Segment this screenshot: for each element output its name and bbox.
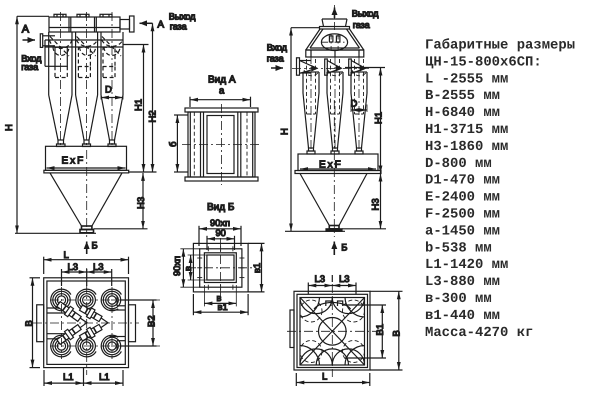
svg-text:L3: L3 bbox=[68, 262, 79, 273]
svg-text:газа: газа bbox=[21, 62, 39, 72]
svg-text:H3: H3 bbox=[136, 197, 147, 209]
svg-text:а: а bbox=[219, 86, 225, 97]
svg-text:H2: H2 bbox=[148, 110, 159, 122]
svg-text:Вход: Вход bbox=[267, 43, 288, 53]
svg-text:В: В bbox=[24, 320, 35, 326]
svg-text:в1: в1 bbox=[218, 302, 228, 312]
svg-text:газа: газа bbox=[353, 20, 371, 30]
svg-text:E x F: E x F bbox=[62, 155, 84, 166]
svg-text:в-300 мм: в-300 мм bbox=[425, 291, 492, 307]
svg-text:Вид Б: Вид Б bbox=[207, 202, 235, 213]
svg-text:L1-1420 мм: L1-1420 мм bbox=[425, 257, 508, 273]
svg-text:D: D bbox=[351, 99, 358, 110]
svg-text:Масса-4270 кг: Масса-4270 кг bbox=[425, 325, 533, 341]
svg-text:b-538 мм: b-538 мм bbox=[425, 240, 492, 256]
svg-text:А: А bbox=[22, 24, 30, 36]
svg-text:L -2555 мм: L -2555 мм bbox=[425, 71, 508, 87]
svg-text:В2: В2 bbox=[147, 315, 158, 327]
svg-text:L1: L1 bbox=[99, 372, 110, 383]
svg-text:Выход: Выход bbox=[169, 11, 196, 21]
svg-text:L3: L3 bbox=[339, 274, 350, 285]
svg-text:Е-2400 мм: Е-2400 мм bbox=[425, 190, 500, 206]
svg-text:D: D bbox=[105, 85, 112, 96]
svg-text:L: L bbox=[322, 372, 327, 383]
svg-text:Б: Б bbox=[92, 241, 98, 252]
svg-text:в: в bbox=[183, 266, 193, 271]
svg-text:а-1450 мм: а-1450 мм bbox=[425, 223, 500, 239]
svg-text:D1-470 мм: D1-470 мм bbox=[425, 173, 500, 189]
svg-text:Н-6840 мм: Н-6840 мм bbox=[425, 105, 500, 121]
svg-text:ЦН-15-800х6СП:: ЦН-15-800х6СП: bbox=[425, 54, 542, 70]
svg-text:L3-880 мм: L3-880 мм bbox=[425, 274, 500, 290]
svg-text:Б: Б bbox=[341, 243, 347, 254]
svg-text:F-2500 мм: F-2500 мм bbox=[425, 207, 500, 223]
svg-text:90хп: 90хп bbox=[172, 256, 182, 276]
svg-text:газа: газа bbox=[267, 53, 285, 63]
svg-text:газа: газа bbox=[170, 21, 188, 31]
svg-text:В1: В1 bbox=[375, 324, 386, 336]
svg-text:90хп: 90хп bbox=[210, 218, 230, 228]
svg-text:H1: H1 bbox=[134, 99, 145, 111]
svg-text:D-800 мм: D-800 мм bbox=[425, 156, 492, 172]
svg-text:Н3: Н3 bbox=[371, 198, 382, 210]
svg-text:L1: L1 bbox=[63, 372, 74, 383]
svg-text:L: L bbox=[64, 250, 69, 261]
svg-text:Н1: Н1 bbox=[374, 112, 385, 124]
svg-text:Габаритные размеры: Габаритные размеры bbox=[425, 38, 575, 54]
svg-text:А: А bbox=[158, 19, 165, 30]
svg-text:В-2555 мм: В-2555 мм bbox=[425, 88, 500, 104]
svg-text:Выход: Выход bbox=[352, 9, 379, 19]
svg-text:в1: в1 bbox=[252, 263, 262, 273]
svg-text:Н1-3715 мм: Н1-3715 мм bbox=[425, 122, 508, 138]
svg-text:в1-440 мм: в1-440 мм bbox=[425, 308, 500, 324]
svg-text:H: H bbox=[4, 124, 15, 131]
svg-text:Н: Н bbox=[280, 128, 291, 135]
svg-text:L3: L3 bbox=[315, 274, 326, 285]
svg-text:90: 90 bbox=[216, 228, 226, 238]
svg-text:Н3-1860 мм: Н3-1860 мм bbox=[425, 139, 508, 155]
svg-text:б: б bbox=[168, 141, 179, 147]
svg-text:Вид А: Вид А bbox=[208, 75, 236, 86]
svg-text:L3: L3 bbox=[93, 262, 104, 273]
svg-text:E x F: E x F bbox=[319, 160, 341, 171]
svg-text:В: В bbox=[392, 330, 403, 336]
